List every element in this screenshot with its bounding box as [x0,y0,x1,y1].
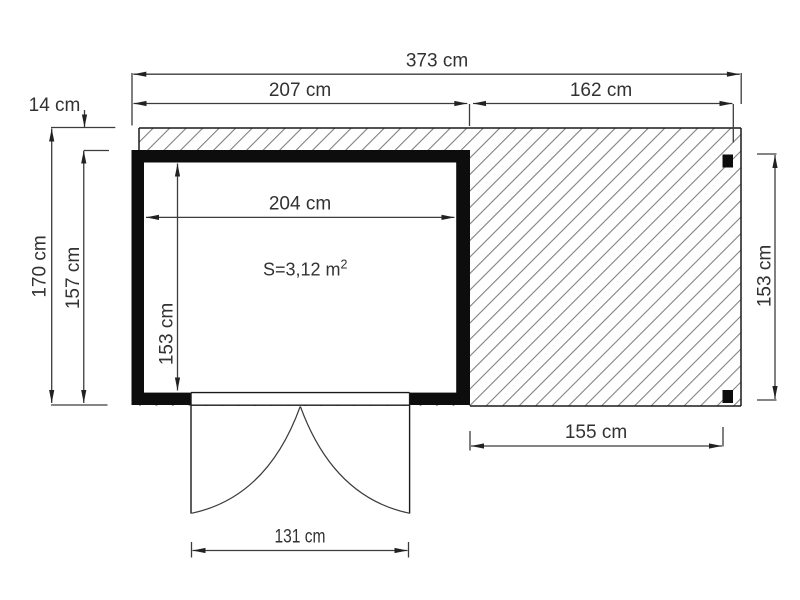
svg-text:373 cm: 373 cm [406,51,468,72]
svg-text:S=3,12 m2: S=3,12 m2 [263,258,348,280]
svg-text:14 cm: 14 cm [29,95,81,116]
svg-text:155 cm: 155 cm [565,422,627,443]
svg-text:131 cm: 131 cm [275,527,326,548]
svg-text:153 cm: 153 cm [754,245,775,307]
svg-text:153 cm: 153 cm [156,303,177,365]
svg-text:162 cm: 162 cm [570,80,632,101]
svg-text:157 cm: 157 cm [63,247,84,309]
svg-text:207 cm: 207 cm [269,80,331,101]
svg-text:204 cm: 204 cm [269,194,331,215]
svg-text:170 cm: 170 cm [29,235,50,297]
